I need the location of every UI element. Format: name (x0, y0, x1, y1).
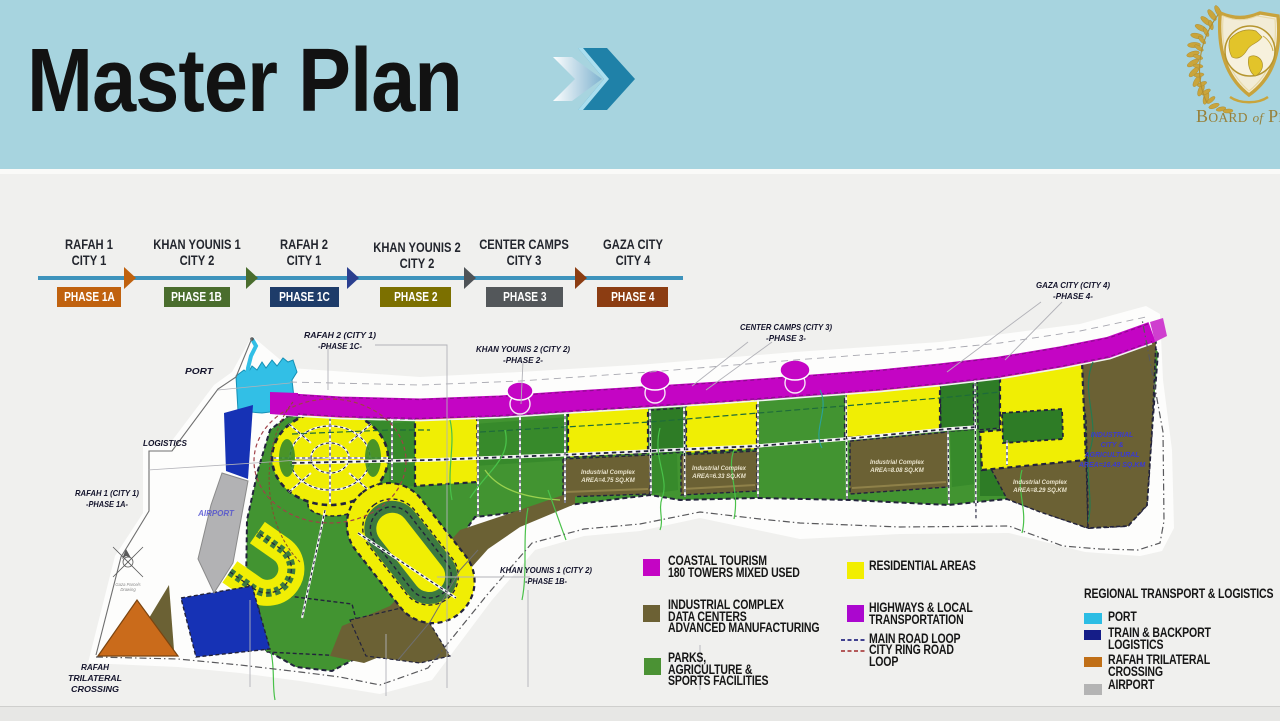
svg-text:KHAN YOUNIS 1 (CITY 2): KHAN YOUNIS 1 (CITY 2) (500, 565, 592, 575)
svg-text:Industrial Complex: Industrial Complex (581, 470, 636, 476)
svg-text:AREA=16.49 SQ.KM: AREA=16.49 SQ.KM (1078, 462, 1145, 469)
svg-text:-PHASE 1C-: -PHASE 1C- (318, 341, 362, 351)
svg-text:-PHASE 4-: -PHASE 4- (1053, 291, 1093, 301)
svg-text:AREA=8.29 SQ.KM: AREA=8.29 SQ.KM (1012, 488, 1068, 494)
svg-text:AIRPORT: AIRPORT (197, 509, 235, 518)
svg-text:-PHASE 1B-: -PHASE 1B- (525, 576, 567, 586)
svg-text:AREA=8.08 SQ.KM: AREA=8.08 SQ.KM (869, 468, 925, 474)
svg-text:CROSSING: CROSSING (71, 685, 119, 694)
svg-text:Industrial Complex: Industrial Complex (692, 466, 747, 472)
svg-text:AREA=6.33 SQ.KM: AREA=6.33 SQ.KM (691, 474, 747, 480)
svg-text:Industrial Complex: Industrial Complex (1013, 480, 1068, 486)
svg-text:AREA=4.75 SQ.KM: AREA=4.75 SQ.KM (580, 478, 636, 484)
svg-text:RAFAH 2 (CITY 1): RAFAH 2 (CITY 1) (304, 330, 376, 340)
svg-text:TRILATERAL: TRILATERAL (68, 674, 122, 683)
svg-text:Drawing: Drawing (120, 587, 136, 592)
svg-text:PORT: PORT (185, 366, 214, 376)
svg-text:-PHASE 2-: -PHASE 2- (503, 355, 543, 365)
svg-text:RAFAH 1 (CITY 1): RAFAH 1 (CITY 1) (75, 488, 139, 498)
svg-text:CITY &: CITY & (1101, 442, 1124, 449)
svg-text:RAFAH: RAFAH (81, 663, 109, 672)
svg-text:-PHASE 3-: -PHASE 3- (766, 333, 806, 343)
svg-text:AGRICULTURAL: AGRICULTURAL (1083, 452, 1139, 459)
svg-text:Industrial Complex: Industrial Complex (870, 460, 925, 466)
svg-text:CENTER CAMPS (CITY 3): CENTER CAMPS (CITY 3) (740, 322, 832, 332)
svg-text:INDUSTRIAL: INDUSTRIAL (1091, 432, 1133, 439)
svg-text:LOGISTICS: LOGISTICS (143, 438, 187, 448)
svg-text:KHAN YOUNIS 2 (CITY 2): KHAN YOUNIS 2 (CITY 2) (476, 344, 570, 354)
svg-text:-PHASE 1A-: -PHASE 1A- (86, 499, 128, 509)
svg-text:GAZA CITY (CITY 4): GAZA CITY (CITY 4) (1036, 280, 1110, 290)
